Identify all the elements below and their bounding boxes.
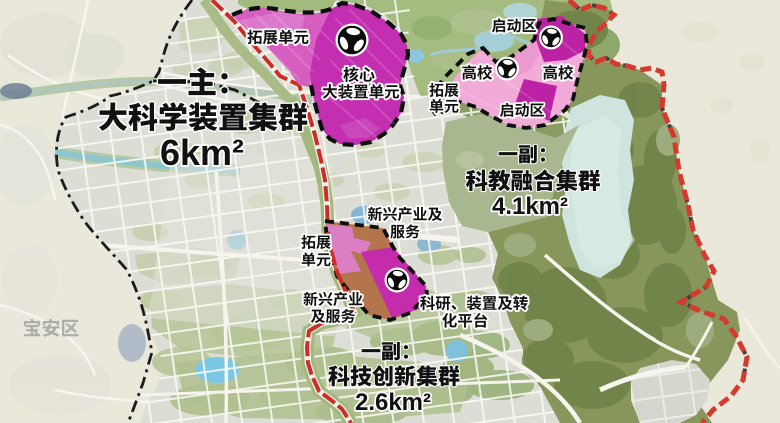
svg-text:2.6km²: 2.6km² [355, 389, 431, 416]
svg-text:6km²: 6km² [160, 132, 244, 173]
svg-text:4.1km²: 4.1km² [492, 193, 568, 220]
